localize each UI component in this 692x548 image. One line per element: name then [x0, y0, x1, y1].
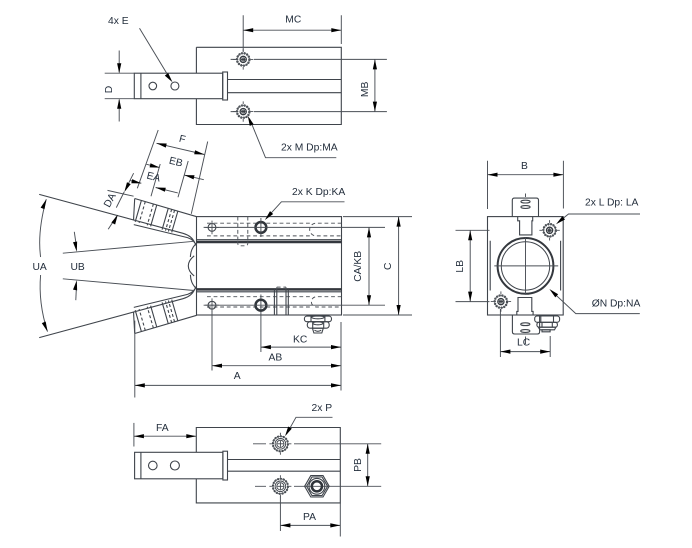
svg-text:4x E: 4x E — [108, 16, 129, 27]
svg-text:A: A — [234, 371, 241, 382]
svg-text:EA: EA — [145, 171, 161, 185]
svg-text:EB: EB — [168, 156, 184, 170]
svg-text:2x P: 2x P — [312, 403, 333, 414]
svg-text:C: C — [383, 262, 394, 270]
svg-text:B: B — [521, 161, 528, 172]
svg-text:PB: PB — [353, 458, 364, 472]
svg-text:2x L Dp: LA: 2x L Dp: LA — [585, 198, 639, 209]
svg-text:ØN Dp:NA: ØN Dp:NA — [592, 298, 641, 309]
svg-text:LC: LC — [517, 338, 531, 349]
svg-text:MB: MB — [360, 82, 371, 98]
svg-text:F: F — [178, 134, 187, 146]
svg-text:2x K Dp:KA: 2x K Dp:KA — [292, 187, 345, 198]
svg-text:D: D — [104, 86, 115, 93]
svg-text:LB: LB — [455, 260, 466, 273]
svg-text:PA: PA — [303, 512, 316, 523]
svg-text:CA/KB: CA/KB — [353, 251, 364, 282]
svg-text:UB: UB — [71, 262, 85, 273]
svg-text:FA: FA — [156, 423, 169, 434]
svg-text:2x M Dp:MA: 2x M Dp:MA — [281, 142, 338, 153]
svg-text:UA: UA — [33, 262, 47, 273]
svg-text:MC: MC — [285, 15, 302, 26]
svg-text:AB: AB — [269, 353, 283, 364]
svg-text:KC: KC — [293, 335, 308, 346]
